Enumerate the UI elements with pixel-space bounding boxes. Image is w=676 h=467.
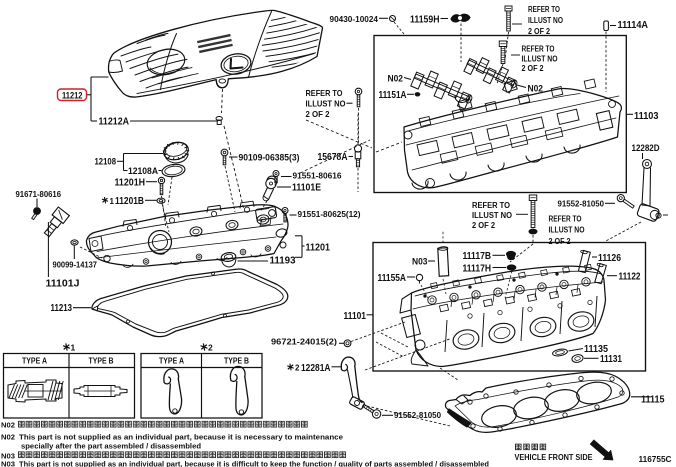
svg-text:116755C: 116755C: [639, 454, 672, 464]
svg-text:2 OF 2: 2 OF 2: [306, 109, 330, 119]
svg-text:11103: 11103: [634, 111, 659, 122]
svg-text:REFER TO: REFER TO: [549, 215, 582, 224]
svg-text:11101J: 11101J: [46, 278, 80, 290]
svg-text:11126: 11126: [598, 253, 621, 264]
svg-text:2 OF 2: 2 OF 2: [522, 64, 544, 73]
svg-text:2 OF 2: 2 OF 2: [528, 27, 550, 36]
svg-text:90430-10024: 90430-10024: [330, 14, 379, 24]
svg-text:12282D: 12282D: [632, 143, 660, 154]
svg-text:96721-24015(2): 96721-24015(2): [271, 337, 337, 347]
svg-text:REFER TO: REFER TO: [472, 201, 510, 210]
svg-text:TYPE A: TYPE A: [159, 357, 184, 366]
svg-text:11212A: 11212A: [99, 116, 130, 127]
svg-text:11131: 11131: [600, 354, 622, 365]
svg-text:11151A: 11151A: [379, 90, 407, 101]
svg-text:12108A: 12108A: [128, 166, 158, 177]
svg-text:12108: 12108: [95, 157, 117, 168]
svg-text:11115: 11115: [641, 394, 665, 405]
svg-text:ILLUST NO: ILLUST NO: [522, 54, 558, 63]
svg-text:11122: 11122: [619, 271, 641, 282]
svg-text:90109-06385(3): 90109-06385(3): [239, 153, 300, 163]
svg-text:2: 2: [208, 343, 213, 353]
svg-text:91551-80616: 91551-80616: [293, 170, 342, 180]
svg-text:N03: N03: [1, 459, 15, 467]
svg-text:11114A: 11114A: [618, 20, 649, 31]
svg-text:N03: N03: [412, 257, 428, 268]
svg-text:11193: 11193: [270, 254, 296, 266]
svg-text:ILLUST NO: ILLUST NO: [528, 16, 563, 25]
svg-text:REFER TO: REFER TO: [306, 88, 343, 98]
svg-text:11213: 11213: [51, 303, 73, 314]
svg-text:TYPE B: TYPE B: [224, 357, 249, 366]
svg-text:91552-81050: 91552-81050: [558, 199, 605, 209]
svg-text:ILLUST NO: ILLUST NO: [549, 226, 585, 235]
svg-text:11101: 11101: [344, 311, 367, 322]
svg-text:90099-14137: 90099-14137: [53, 259, 98, 269]
svg-text:12281A: 12281A: [301, 363, 331, 374]
svg-text:ILLUST NO: ILLUST NO: [472, 211, 512, 220]
svg-text:TYPE B: TYPE B: [89, 357, 114, 366]
svg-text:11117B: 11117B: [463, 251, 492, 262]
svg-text:N02: N02: [1, 433, 15, 442]
svg-text:ILLUST NO: ILLUST NO: [306, 98, 346, 108]
svg-text:2 OF 2: 2 OF 2: [549, 237, 571, 246]
svg-text:N02: N02: [388, 74, 404, 85]
svg-text:1: 1: [110, 197, 115, 206]
svg-text:11155A: 11155A: [378, 273, 407, 284]
svg-text:11101E: 11101E: [292, 182, 321, 193]
svg-text:11201H: 11201H: [115, 178, 146, 189]
svg-text:15678A: 15678A: [318, 152, 348, 163]
svg-text:91551-80625(12): 91551-80625(12): [298, 209, 361, 219]
svg-text:91671-80616: 91671-80616: [16, 189, 62, 199]
svg-text:11212: 11212: [62, 90, 83, 101]
svg-text:specially after the part assem: specially after the part assembled / dis…: [21, 441, 201, 450]
svg-text:This part is not supplied as a: This part is not supplied as an individu…: [19, 433, 343, 442]
svg-text:11117H: 11117H: [463, 263, 492, 274]
svg-text:This part is not supplied as a: This part is not supplied as an individu…: [19, 459, 489, 467]
svg-text:N02: N02: [1, 421, 15, 430]
svg-text:11159H: 11159H: [410, 14, 440, 25]
svg-text:1: 1: [71, 343, 76, 353]
svg-text:TYPE A: TYPE A: [22, 357, 47, 366]
svg-text:2 OF 2: 2 OF 2: [472, 221, 496, 230]
svg-text:11201B: 11201B: [115, 196, 144, 207]
svg-text:91552-81050: 91552-81050: [394, 410, 441, 420]
svg-text:VEHICLE FRONT SIDE: VEHICLE FRONT SIDE: [515, 453, 594, 462]
svg-text:11201: 11201: [306, 242, 331, 253]
svg-text:REFER TO: REFER TO: [528, 5, 560, 14]
svg-text:2: 2: [295, 364, 300, 373]
svg-text:REFER TO: REFER TO: [522, 45, 555, 54]
